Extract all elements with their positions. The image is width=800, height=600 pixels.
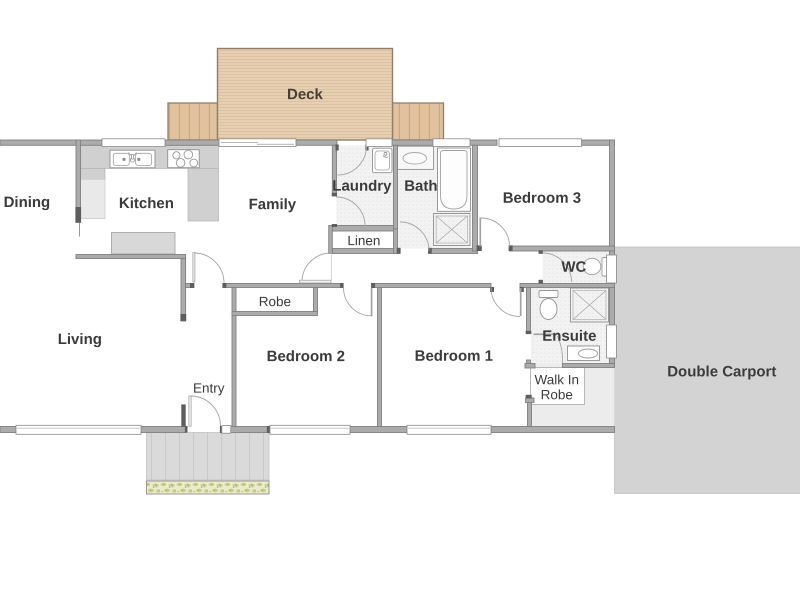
svg-text:WC: WC [561,259,586,276]
svg-text:Family: Family [249,196,297,213]
svg-text:Kitchen: Kitchen [119,195,174,212]
svg-text:Ensuite: Ensuite [542,328,596,345]
svg-text:Bedroom 3: Bedroom 3 [503,190,581,207]
svg-text:Robe: Robe [541,387,573,402]
svg-text:Bedroom 2: Bedroom 2 [267,348,345,365]
svg-text:Deck: Deck [287,86,324,103]
svg-text:Bedroom 1: Bedroom 1 [415,348,493,365]
svg-text:Living: Living [58,331,102,348]
svg-text:Laundry: Laundry [332,178,392,195]
svg-text:Double Carport: Double Carport [667,363,776,380]
svg-text:Linen: Linen [347,233,380,248]
svg-text:Walk In: Walk In [535,372,580,387]
svg-text:Entry: Entry [193,381,225,396]
svg-text:Robe: Robe [259,294,291,309]
svg-text:Dining: Dining [4,194,51,211]
svg-text:Bath: Bath [404,178,437,195]
